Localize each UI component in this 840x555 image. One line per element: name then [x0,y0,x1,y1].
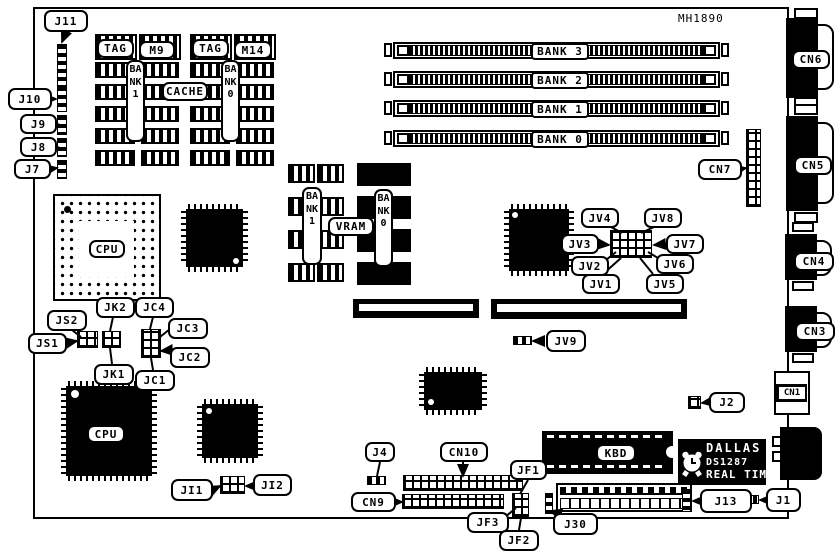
simm-clip [397,133,409,144]
j1-label: J1 [766,488,801,512]
simm-clip [721,72,729,86]
pin1-dot [233,258,239,264]
j9-jumper [57,115,67,135]
jv8-label: JV8 [644,208,682,228]
cpu-chip-label: CPU [87,425,125,443]
power-connector [556,483,692,512]
j8-label: J8 [20,137,57,157]
rtc-brand: DALLAS [706,442,761,455]
cache-chip [236,62,274,78]
cn7-header [746,129,761,207]
jk2-label: JK2 [96,297,135,318]
jf2-label: JF2 [499,530,539,551]
j4-jumper [367,476,386,485]
pin1-dot [64,206,71,213]
simm-clip [397,45,409,56]
cache-chip [141,150,179,166]
bank3-label: BANK 3 [531,43,589,60]
cn7-label: CN7 [698,159,742,180]
simm-clip [704,45,716,56]
vram-bank0-label: BANK0 [374,189,393,267]
cache-m9-label: M9 [139,41,175,59]
j4-label: J4 [365,442,395,462]
js-jumper-block [77,331,98,348]
cache-chip [95,150,135,166]
j30-jumper [545,493,553,514]
cache-label: CACHE [162,82,208,101]
pin1-dot [71,390,79,398]
simm-clip [384,131,392,145]
j2-label: J2 [709,392,745,413]
rtc-type: REAL TIME [706,468,775,481]
feature-slot-inner [497,304,681,312]
jc3-label: JC3 [168,318,208,339]
vram-chip [288,263,315,282]
simm-clip [704,74,716,85]
bank1-label: BANK 1 [531,101,589,118]
cn9-header [402,494,504,509]
vram-bank1-label: BANK1 [302,187,322,265]
j13-jumper [682,489,691,512]
pin1-dot [206,408,212,414]
feature-slot-inner [359,304,473,311]
connector-tab [792,353,814,363]
jv6-label: JV6 [656,254,694,274]
vram-chip-populated [357,163,411,186]
kbd-socket-line [547,435,667,438]
j10-jumper [57,86,67,112]
vram-chip [317,164,344,183]
jv1-label: JV1 [582,274,620,294]
j9-label: J9 [20,114,57,134]
cache-chip [141,106,179,122]
simm-clip [721,101,729,115]
connector-tab [794,104,818,115]
cache-chip [236,106,274,122]
simm-clip [704,103,716,114]
simm-clip [397,103,409,114]
simm-clip [721,43,729,57]
j30-label: J30 [553,513,598,535]
cn4-label: CN4 [794,252,834,271]
ji-jumper-block [220,476,245,494]
simm-clip [384,101,392,115]
cache-chip [236,84,274,100]
jk-jumper-block [102,331,121,348]
keyboard-din-connector [780,427,822,480]
jv9-jumper [513,336,532,345]
pin1-dot [428,399,434,405]
cn5-label: CN5 [794,156,832,175]
cache-bank1-label: BANK1 [126,60,145,142]
j8-jumper [57,138,67,157]
jv2-label: JV2 [571,256,609,276]
kbd-socket-line [547,465,667,468]
vram-label: VRAM [328,217,374,236]
j7-label: J7 [14,159,51,179]
cache-m14-label: M14 [234,41,272,59]
ji1-label: JI1 [171,479,213,501]
motherboard-diagram: MH1890 J11 J10 J9 J8 J7 TAG M9 TAG M14 B… [0,0,840,555]
cache-chip [190,150,230,166]
kbd-label: KBD [596,444,636,462]
cache-chip [236,128,274,144]
connector-tab [772,451,782,462]
qfp-chip [419,367,487,415]
cn1-label: CN1 [778,386,806,400]
vram-chip [317,263,344,282]
simm-clip [384,72,392,86]
alarm-clock-icon [680,446,704,478]
jk1-label: JK1 [94,364,134,385]
bank2-label: BANK 2 [531,72,589,89]
simm-clip [384,43,392,57]
cn3-label: CN3 [795,322,835,341]
connector-tab [792,222,814,232]
jv5-label: JV5 [646,274,684,294]
cache-tag-right-label: TAG [192,39,229,58]
vram-chip [288,164,315,183]
j7-jumper [57,160,67,179]
cache-chip [236,150,274,166]
j2-jumper [688,396,701,409]
js2-label: JS2 [47,310,87,331]
jv4-label: JV4 [581,208,619,228]
jv7-label: JV7 [666,234,704,254]
j10-label: J10 [8,88,52,110]
jf-jumper-block [512,493,529,517]
j13-label: J13 [700,489,752,513]
jc2-label: JC2 [170,347,210,368]
jv3-label: JV3 [561,234,599,254]
cn9-label: CN9 [351,492,396,512]
jc1-label: JC1 [135,370,175,391]
jv-jumper-block [610,230,652,258]
bank0-label: BANK 0 [531,131,589,148]
cn6-label: CN6 [792,50,830,69]
cache-tag-left-label: TAG [97,39,134,58]
cpu-socket-label: CPU [89,240,125,258]
cache-bank0-label: BANK0 [221,60,240,142]
js1-label: JS1 [28,333,67,354]
power-connector-tabs [560,487,688,495]
cn10-label: CN10 [440,442,488,462]
cache-chip [141,62,179,78]
j11-label: J11 [44,10,88,32]
connector-tab [772,436,782,447]
jf1-label: JF1 [510,460,547,480]
connector-tab [794,8,818,19]
simm-clip [704,133,716,144]
simm-clip [721,131,729,145]
simm-clip [397,74,409,85]
jc4-label: JC4 [135,297,174,318]
connector-tab [792,281,814,291]
part-number: MH1890 [678,12,724,25]
power-connector-pins [560,498,688,509]
cache-chip [141,128,179,144]
kbd-notch [666,446,678,458]
cn10-header [403,475,523,491]
jc-jumper-block [141,329,161,358]
pin1-dot [512,212,518,218]
ji2-label: JI2 [253,474,292,496]
jv9-label: JV9 [546,330,586,352]
